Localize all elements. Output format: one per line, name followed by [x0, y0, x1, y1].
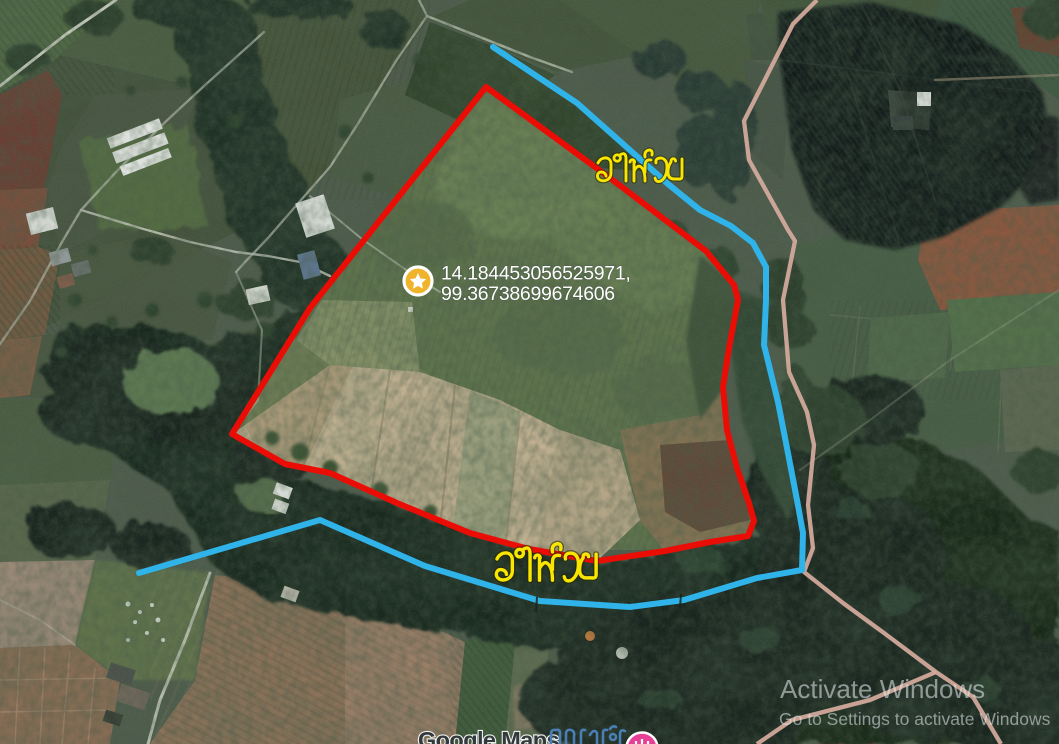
- svg-text:Activate Windows: Activate Windows: [780, 674, 985, 704]
- svg-text:Go to Settings to activate Win: Go to Settings to activate Windows: [779, 709, 1051, 729]
- svg-text:99.36738699674606: 99.36738699674606: [441, 283, 615, 305]
- svg-text:Google Maps: Google Maps: [418, 727, 559, 744]
- svg-text:14.184453056525971,: 14.184453056525971,: [441, 263, 631, 285]
